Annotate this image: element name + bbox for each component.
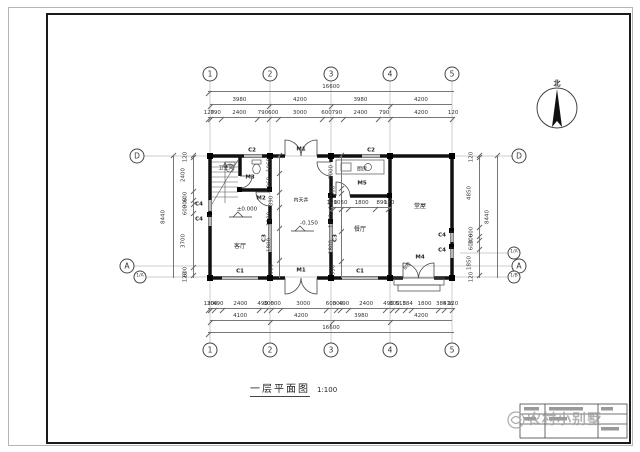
window-code-c4-left2: C4 bbox=[195, 217, 203, 223]
door-code-m4: M4 bbox=[415, 255, 424, 261]
room-label-living: 客厅 bbox=[234, 244, 246, 250]
grid-bubble-col4-bottom: 4 bbox=[383, 343, 398, 358]
level-label-zero: ±0.000 bbox=[237, 207, 257, 213]
grid-bubble-col5-bottom: 5 bbox=[445, 343, 460, 358]
window-code-c3-right: C3 bbox=[333, 234, 339, 242]
grid-bubble-rowfracB-right: 1/B bbox=[508, 271, 521, 284]
grid-bubble-col2-bottom: 2 bbox=[263, 343, 278, 358]
window-code-c2-left: C2 bbox=[248, 148, 256, 154]
door-code-m1-bottom: M1 bbox=[296, 268, 305, 274]
drawing-title: 一层平面图 bbox=[250, 380, 310, 397]
window-code-c1-mid: C1 bbox=[356, 269, 364, 275]
grid-bubble-rowfracA-left: 1/A bbox=[134, 271, 147, 284]
drawing-scale: 1:100 bbox=[317, 386, 337, 394]
room-label-courtyard: 内天井 bbox=[293, 199, 308, 204]
grid-bubble-col1-bottom: 1 bbox=[203, 343, 218, 358]
window-code-c4-right2: C4 bbox=[438, 248, 446, 254]
window-code-c1-left: C1 bbox=[236, 269, 244, 275]
dim-court-left: 1060106089012001800990 bbox=[272, 156, 280, 278]
grid-bubble-col3-bottom: 3 bbox=[324, 343, 339, 358]
window-code-c2-right: C2 bbox=[367, 148, 375, 154]
door-code-m2: M2 bbox=[256, 196, 265, 202]
door-code-m3: M3 bbox=[245, 175, 254, 181]
dim-court-right: 2000300100013501800990 bbox=[334, 156, 342, 278]
north-arrow-label: 北 bbox=[554, 81, 561, 88]
dim-bottom-total: 16600 bbox=[208, 325, 454, 333]
dim-right-detail: 12048506003006001850120 bbox=[472, 156, 480, 278]
watermark-text: 农村小别墅 bbox=[527, 409, 602, 429]
window-code-c4-left1: C4 bbox=[195, 202, 203, 208]
grid-bubble-rowA-left: A bbox=[120, 259, 135, 274]
window-code-c3-left: C3 bbox=[262, 234, 268, 242]
dim-top-spans: 3980420039804200 bbox=[210, 97, 452, 105]
dim-top-detail: 1207902400790600300060079024007904200120 bbox=[208, 110, 454, 118]
level-label-minus: -0.150 bbox=[300, 221, 318, 227]
door-code-m1-top: M1 bbox=[296, 147, 305, 153]
grid-bubble-col5-top: 5 bbox=[445, 67, 460, 82]
dim-top-total: 16600 bbox=[208, 84, 454, 92]
drawing-sheet: 1 2 3 4 5 1 2 3 4 5 D A 1/A D 1/A A 1/B … bbox=[0, 0, 640, 452]
grid-bubble-col1-top: 1 bbox=[203, 67, 218, 82]
dim-left-detail: 12024006003006003700600120 bbox=[186, 156, 194, 278]
room-label-dining: 餐厅 bbox=[354, 227, 366, 233]
room-label-bathroom: 卫生间 bbox=[218, 167, 233, 172]
door-code-m5: M5 bbox=[357, 181, 366, 187]
dim-bottom-detail: 1203004902400490300600300060030049024004… bbox=[208, 301, 454, 309]
dim-bottom-spans: 4100420039804200 bbox=[210, 313, 452, 321]
dim-left-total: 8440 bbox=[166, 156, 174, 278]
grid-bubble-col4-top: 4 bbox=[383, 67, 398, 82]
drawing-title-row: 一层平面图 1:100 bbox=[250, 380, 337, 397]
grid-bubble-rowD-left: D bbox=[130, 149, 145, 164]
room-label-hall: 堂屋 bbox=[414, 204, 426, 210]
dim-right-total: 8440 bbox=[490, 156, 498, 278]
dim-kitchen: 12010501800890120 bbox=[331, 200, 390, 208]
grid-bubble-col3-top: 3 bbox=[324, 67, 339, 82]
grid-bubble-rowD-right: D bbox=[512, 149, 527, 164]
grid-bubble-col2-top: 2 bbox=[263, 67, 278, 82]
window-code-c4-right1: C4 bbox=[438, 233, 446, 239]
room-label-kitchen: 厨房 bbox=[357, 168, 367, 173]
